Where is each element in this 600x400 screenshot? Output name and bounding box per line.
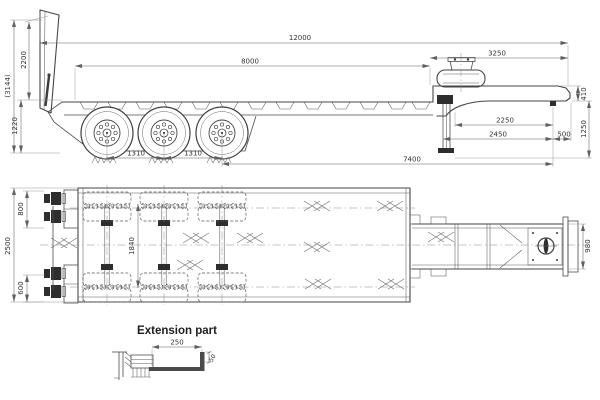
extension-drawing: 250 50 (112, 339, 218, 381)
dim-label-ramp-height: 2200 (20, 51, 28, 69)
kingpin-plan (535, 238, 557, 254)
dim-label-deck-length: 8000 (241, 58, 259, 66)
dim-label-neck-depth: 410 (580, 87, 588, 100)
trailer-engineering-drawing: (3144) 2200 1220 12000 8000 3250 (0, 0, 600, 400)
dim-label-axle-spacing-1: 1310 (127, 150, 145, 158)
dim-overall-length: 12000 (40, 12, 568, 85)
gooseneck (433, 86, 570, 116)
dim-label-overall-height: (3144) (4, 74, 12, 98)
dim-extension-length: 250 (152, 339, 202, 367)
dim-label-top-hinge-width: 800 (17, 202, 25, 215)
dim-label-neck-to-kingpin: 2250 (496, 117, 514, 125)
dim-extension-thickness: 50 (205, 352, 218, 364)
extension-title: Extension part (137, 325, 217, 337)
ramp-hinge-bottom (44, 265, 78, 303)
extension-detail: Extension part 250 50 (112, 325, 218, 380)
dim-top-hinge-width: 800 (17, 191, 44, 228)
side-view: (3144) 2200 1220 12000 8000 3250 (4, 10, 592, 167)
landing-gear (437, 95, 454, 153)
dim-axle-to-kingpin: 7400 (222, 156, 553, 165)
dim-label-inner-width: 1840 (128, 237, 136, 255)
ramp-hinge-top (44, 190, 78, 228)
dim-label-overall-width: 2500 (4, 237, 12, 255)
dim-inner-width: 1840 (128, 204, 138, 288)
kingpin (550, 101, 556, 106)
deck-cleats (80, 102, 430, 109)
dim-deck-length: 8000 (75, 58, 430, 101)
dim-label-bottom-hinge-width: 600 (17, 281, 25, 294)
dim-bottom-hinge-width: 600 (17, 275, 44, 302)
dim-label-neck-width: 980 (584, 239, 592, 252)
gooseneck-plan (410, 215, 578, 278)
dim-neck-depth: 410 (560, 86, 588, 101)
dim-label-deck-height: 1220 (11, 117, 19, 135)
dim-label-axle-spacing-2: 1310 (184, 150, 202, 158)
dim-label-leg-to-kingpin: 2450 (489, 131, 507, 139)
dim-label-rear-overhang: 500 (557, 131, 570, 139)
dim-label-gooseneck-length: 3250 (488, 50, 506, 58)
plan-view: 2500 800 600 1840 980 (4, 185, 592, 305)
dim-rear-overhang: 500 (553, 103, 571, 141)
front-ramp (40, 10, 59, 113)
dim-neck-width: 980 (568, 224, 592, 269)
dim-gooseneck-length: 3250 (430, 50, 568, 59)
drawing-svg: (3144) 2200 1220 12000 8000 3250 (0, 0, 600, 400)
dim-ramp-height: 2200 (20, 16, 48, 100)
dim-label-axle-to-kingpin: 7400 (403, 156, 421, 164)
dim-kingpin-height: 1250 (455, 101, 592, 158)
dim-label-kingpin-height: 1250 (580, 120, 588, 138)
dim-label-overall-length: 12000 (289, 34, 311, 42)
dim-label-extension-length: 250 (170, 339, 183, 347)
